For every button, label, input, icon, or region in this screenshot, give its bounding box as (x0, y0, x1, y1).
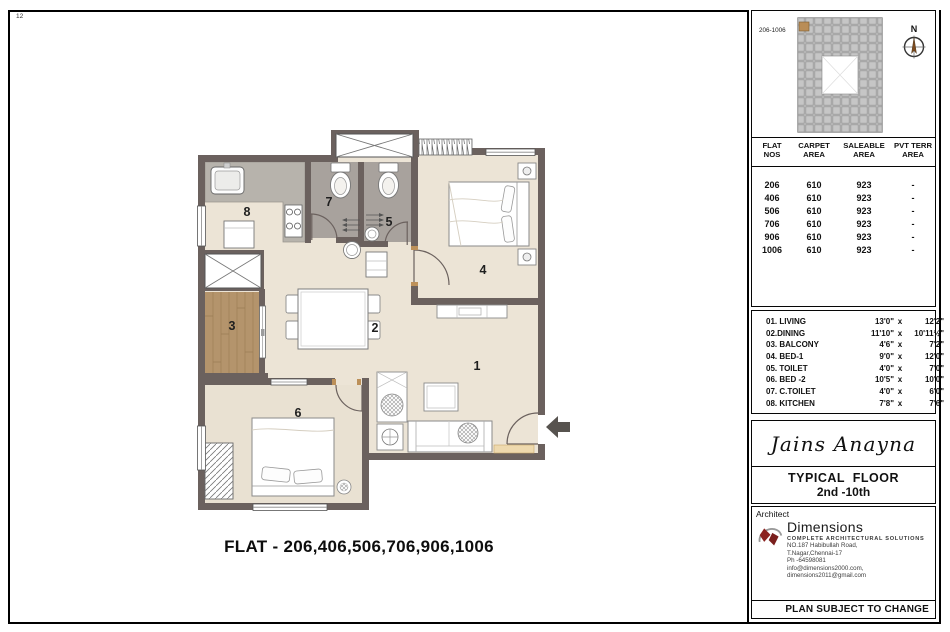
table-row: 406610923- (752, 192, 935, 205)
entry-arrow (546, 416, 570, 438)
col-header-saleable: SALEABLEAREA (836, 142, 892, 166)
north-arrow: N (900, 24, 928, 65)
sofa (408, 421, 492, 452)
dimensions-logo-icon (757, 523, 784, 550)
closet-hatch (205, 443, 233, 499)
room-legend: 01. LIVING13'0"x12'2" 02.DINING11'10"x10… (751, 310, 936, 414)
table-row: 1006610923- (752, 244, 935, 257)
floor-plan-drawing: 1 2 3 4 5 6 7 8 (185, 95, 585, 555)
room-label-toilet: 5 (386, 215, 393, 229)
firm-address-line: Ph -64598081 (787, 557, 935, 565)
north-compass-icon (901, 34, 927, 60)
room-label-dining: 2 (372, 321, 379, 335)
legend-row: 07. C.TOILET4'0"x6'0" (766, 386, 935, 398)
architect-box: Architect Dimensions COMPLETE ARCHITECTU… (751, 506, 936, 601)
room-label-ctoilet: 7 (326, 195, 333, 209)
project-name: Jains Anayna (771, 432, 917, 456)
entry-mat (494, 445, 534, 453)
kitchen-cabinet (224, 221, 254, 248)
table-row: 706610923- (752, 218, 935, 231)
floor-title: TYPICAL FLOOR (752, 471, 935, 485)
areas-table-header: FLATNOS CARPETAREA SALEABLEAREA PVT TERR… (751, 137, 936, 167)
firm-address-line: info@dimensions2000.com, dimensions2011@… (787, 565, 935, 580)
site-key-plan (796, 16, 884, 134)
table-row: 906610923- (752, 231, 935, 244)
table-row: 506610923- (752, 205, 935, 218)
room-label-living: 1 (474, 359, 481, 373)
wash-basin (365, 227, 379, 241)
room-label-balcony: 3 (229, 319, 236, 333)
tv-console (437, 305, 507, 318)
legend-row: 02.DINING11'10"x10'11½" (766, 328, 935, 340)
legend-row: 04. BED-19'0"x12'0" (766, 351, 935, 363)
footer-note-box: PLAN SUBJECT TO CHANGE (751, 600, 936, 619)
col-header-pvt-terr: PVT TERRAREA (892, 142, 934, 166)
title-block: 206-1006 N (747, 10, 939, 622)
legend-row: 05. TOILET4'0"x7'0" (766, 363, 935, 375)
sheet-note: 12 (16, 13, 23, 20)
legend-row: 06. BED -210'5"x10'0" (766, 374, 935, 386)
balcony-floor (205, 292, 261, 376)
architect-section-label: Architect (752, 507, 935, 519)
north-label: N (900, 24, 928, 34)
room-label-bed1: 4 (480, 263, 487, 277)
balcony-slider (260, 306, 266, 358)
firm-address-line: T.Nagar,Chennai-17 (787, 550, 935, 558)
legend-row: 03. BALCONY4'6"x7'2" (766, 339, 935, 351)
col-header-flat: FLATNOS (752, 142, 792, 166)
center-table (424, 383, 458, 411)
wardrobe-hatch (419, 139, 472, 155)
architect-logo-block: Dimensions COMPLETE ARCHITECTURAL SOLUTI… (752, 520, 935, 580)
col-header-carpet: CARPETAREA (792, 142, 836, 166)
highlighted-unit (799, 22, 809, 31)
dining-set (286, 289, 380, 349)
room-label-kitchen: 8 (244, 205, 251, 219)
project-name-box: Jains Anayna (751, 420, 936, 467)
wash-basin (344, 242, 361, 259)
areas-table-values: 206610923- 406610923- 506610923- 7066109… (751, 166, 936, 307)
footer-note: PLAN SUBJECT TO CHANGE (785, 604, 929, 615)
legend-row: 01. LIVING13'0"x12'2" (766, 316, 935, 328)
legend-row: 08. KITCHEN7'8"x7'6" (766, 398, 935, 410)
firm-name: Dimensions (787, 520, 935, 535)
plan-caption: FLAT - 206,406,506,706,906,1006 (189, 537, 529, 557)
firm-address-line: NO.187 Habibullah Road, (787, 542, 935, 550)
room-label-bed2: 6 (295, 406, 302, 420)
floor-range: 2nd -10th (752, 485, 935, 499)
table-row: 206610923- (752, 179, 935, 192)
key-plan-box: 206-1006 N (751, 10, 936, 138)
floor-title-box: TYPICAL FLOOR 2nd -10th (751, 466, 936, 504)
key-plan-unit-label: 206-1006 (759, 27, 786, 34)
drawing-sheet: 12 (0, 0, 950, 632)
